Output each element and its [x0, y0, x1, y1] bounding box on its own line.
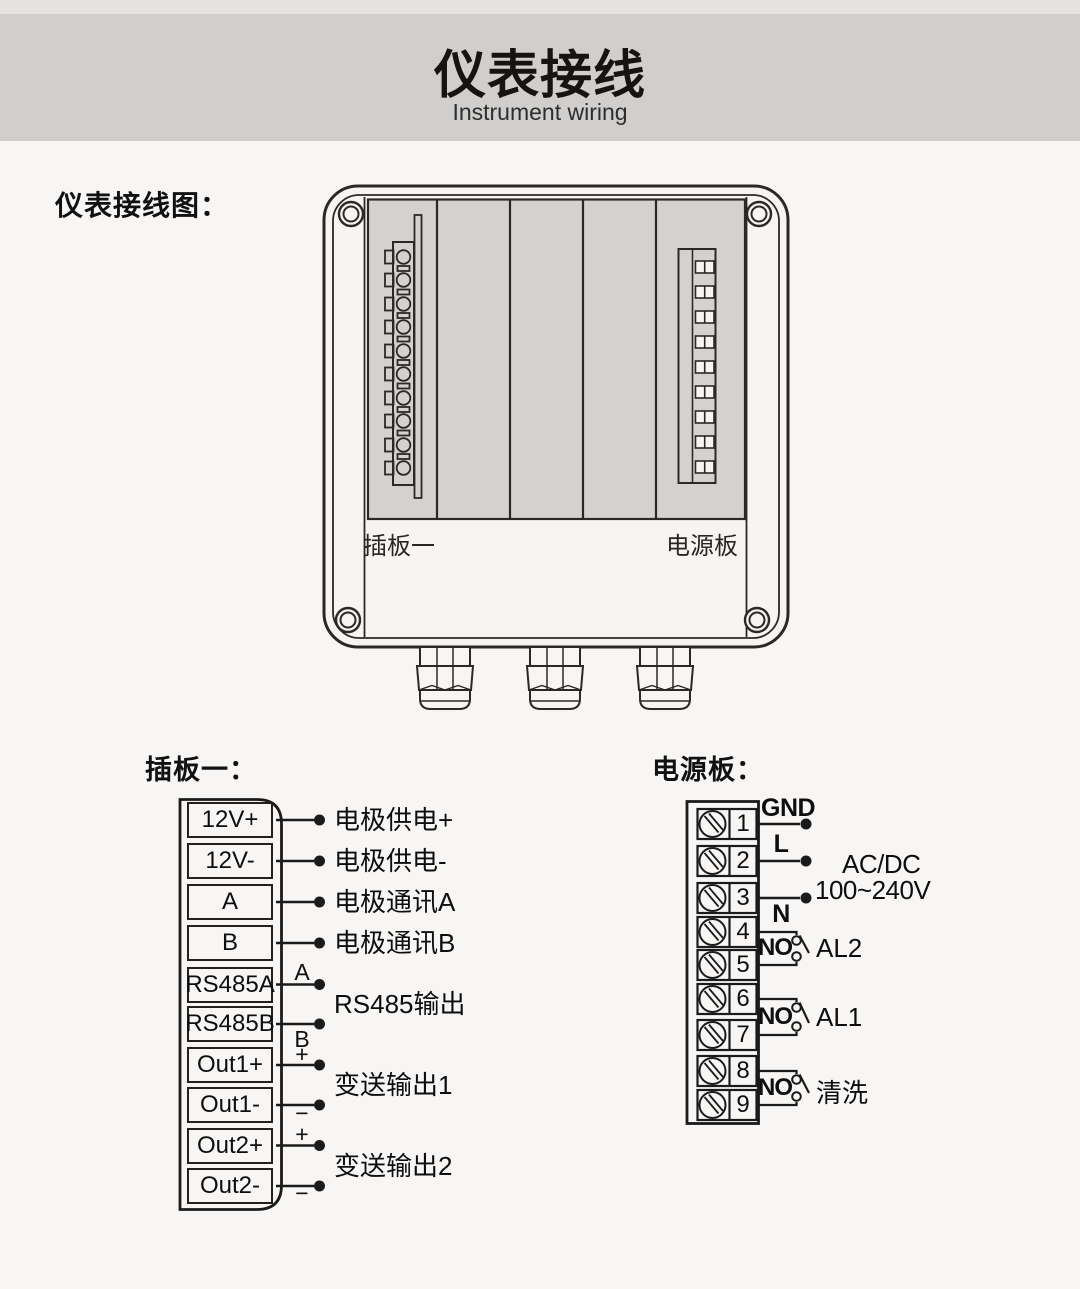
wiring-diagram-svg: [0, 0, 1080, 1289]
relay-contact-label: NO: [754, 1003, 792, 1031]
power-board-heading: 电源板：: [652, 748, 764, 787]
terminal-box: Out2+: [187, 1128, 273, 1164]
terminal-number: 5: [729, 950, 757, 980]
wire-mark: +: [290, 1121, 314, 1147]
terminal-number: 4: [729, 917, 757, 947]
cable-gland-icon: [527, 647, 583, 709]
terminal-box: 12V-: [187, 843, 273, 879]
wire-mark: A: [290, 959, 314, 985]
relay-contact-label: NO: [754, 934, 792, 962]
cable-gland-icon: [637, 647, 693, 709]
terminal-number: 2: [729, 846, 757, 876]
wire-tag-n: N: [766, 900, 796, 929]
relay-label: AL1: [816, 1002, 862, 1033]
terminal-box: Out2-: [187, 1168, 273, 1204]
wire-label: 电极供电-: [334, 844, 447, 878]
terminal-box: B: [187, 925, 273, 961]
terminal-box: RS485A: [187, 967, 273, 1003]
wire-pair-label: RS485输出: [334, 987, 466, 1021]
relay-label: AL2: [816, 933, 862, 964]
terminal-box: RS485B: [187, 1006, 273, 1042]
terminal-number: 6: [729, 984, 757, 1014]
wire-mark: +: [290, 1041, 314, 1067]
wire-pair-label: 变送输出1: [334, 1068, 452, 1102]
terminal-number: 3: [729, 883, 757, 913]
enclosure-drawing: [324, 186, 788, 709]
cable-gland-icon: [417, 647, 473, 709]
instrument-wiring-page: 仪表接线 Instrument wiring 仪表接线图：: [0, 0, 1080, 1289]
terminal-number: 1: [729, 809, 757, 839]
wire-tag-l: L: [766, 830, 796, 859]
wire-label: 电极通讯B: [334, 926, 455, 960]
enclosure-power-label: 电源板: [666, 526, 738, 561]
wire-pair-label: 变送输出2: [334, 1149, 452, 1183]
terminal-box: Out1-: [187, 1087, 273, 1123]
wire-label: 电极供电+: [334, 803, 453, 837]
terminal-box: A: [187, 884, 273, 920]
terminal-box: Out1+: [187, 1047, 273, 1083]
power-connector-drawing: [679, 249, 716, 483]
terminal-box: 12V+: [187, 802, 273, 838]
wire-mark: −: [290, 1180, 314, 1206]
wire-tag-gnd: GND: [761, 794, 815, 823]
relay-contact-label: NO: [754, 1074, 792, 1102]
wire-label: 电极通讯A: [334, 885, 455, 919]
relay-label: 清洗: [816, 1073, 868, 1110]
board1-heading: 插板一：: [145, 748, 257, 787]
terminal-number: 9: [729, 1090, 757, 1120]
enclosure-board1-label: 插板一: [363, 526, 435, 561]
terminal-number: 8: [729, 1056, 757, 1086]
supply-rating-line2: 100~240V: [815, 875, 930, 906]
terminal-number: 7: [729, 1020, 757, 1050]
